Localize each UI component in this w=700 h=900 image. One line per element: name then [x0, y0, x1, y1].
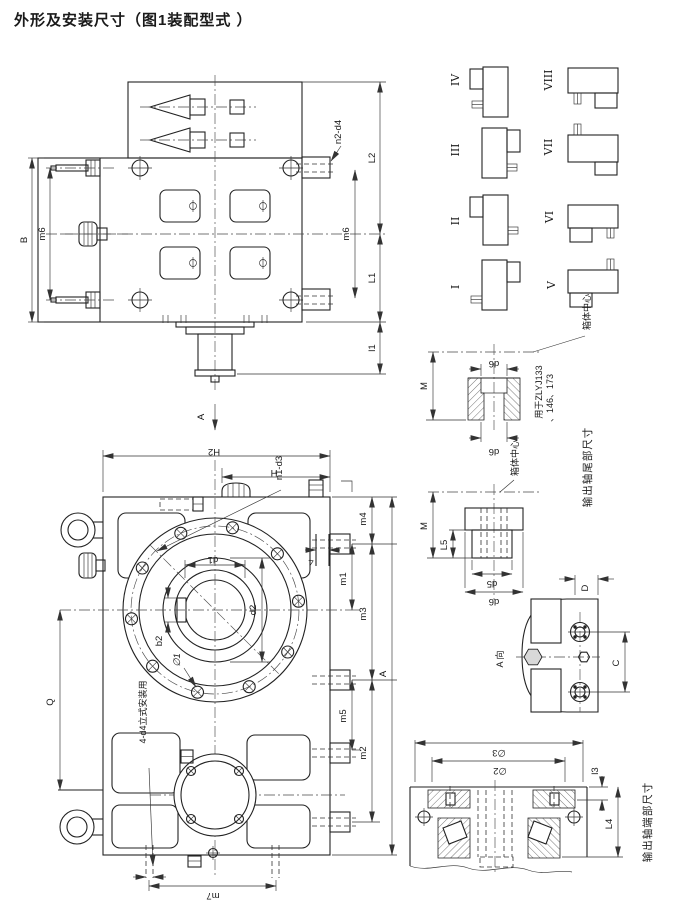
- view-a-dimensions: [559, 575, 630, 692]
- dim-label-d6-bottom: d6: [489, 446, 500, 457]
- usage-note-line1: 用于ZLYJ133: [534, 365, 544, 418]
- front-view: H2 H: [45, 446, 397, 900]
- breather-cap: [219, 483, 253, 497]
- dim-label-b2: b2: [154, 636, 165, 647]
- dim-label-m4: m4: [358, 512, 369, 525]
- input-shaft-cones: [140, 95, 256, 152]
- tapered-bearings: [438, 818, 560, 858]
- dim-label-n2-d4: n2-d4: [333, 120, 344, 144]
- usage-note-line2: 、146、173: [545, 374, 555, 422]
- box-center-label-2: 箱体中心: [509, 440, 520, 476]
- lower-opening: [174, 754, 256, 836]
- dim-label-phi1: ∅1: [172, 653, 183, 667]
- dim-label-step4: 4: [308, 556, 313, 567]
- dim-label-A: A: [378, 670, 389, 677]
- dim-label-l3: l3: [590, 767, 601, 774]
- dim-label-m5: m5: [338, 709, 349, 722]
- tail-caption: 输出轴尾部尺寸: [581, 427, 594, 508]
- technical-drawing: 外形及安装尺寸（图1装配型式 ）: [0, 0, 700, 900]
- assembly-type-viii: VIII: [542, 68, 618, 108]
- dim-label-H2: H2: [208, 446, 220, 457]
- drawing-page: 外形及安装尺寸（图1装配型式 ）: [0, 0, 700, 900]
- svg-text:I: I: [449, 285, 462, 289]
- dim-label-d2: d2: [248, 605, 259, 616]
- dim-label-M-upper: M: [419, 382, 430, 390]
- page-title: 外形及安装尺寸（图1装配型式 ）: [13, 11, 253, 29]
- view-a-arrow-label: A: [196, 413, 207, 420]
- front-side-tabs: [312, 534, 356, 832]
- dim-label-d6-lower: d6: [489, 596, 500, 607]
- svg-text:VII: VII: [542, 139, 555, 157]
- plan-view: B m6 n2-d4 L2 m6 L1 l1 A: [19, 75, 386, 430]
- output-shaft-end-section: ∅3 ∅2 l3 L4 输出轴端部尺寸: [410, 740, 654, 873]
- dim-label-m7: m7: [206, 890, 219, 900]
- dim-label-phi3: ∅3: [492, 747, 506, 758]
- svg-text:VIII: VIII: [542, 70, 555, 92]
- dim-label-L1: L1: [367, 273, 378, 284]
- dim-label-L4: L4: [604, 819, 615, 830]
- vertical-mount-note: 4-d4立式安装用: [137, 680, 148, 743]
- svg-text:III: III: [449, 143, 462, 156]
- assembly-type-i: I: [449, 260, 520, 310]
- dim-label-D: D: [580, 584, 591, 591]
- box-center-label-1: 箱体中心: [581, 294, 592, 330]
- dim-label-m2: m2: [358, 746, 369, 759]
- dim-label-d6-top: d6: [489, 358, 500, 369]
- svg-text:II: II: [449, 217, 462, 226]
- section-caption: 输出轴端部尺寸: [641, 782, 654, 863]
- assembly-type-ii: II: [449, 195, 518, 245]
- top-plug: [309, 480, 352, 497]
- svg-text:VI: VI: [543, 211, 556, 224]
- assembly-type-vii: VII: [542, 124, 618, 175]
- dim-label-l1: l1: [367, 344, 378, 351]
- dim-label-m6-left: m6: [37, 227, 48, 240]
- dim-label-B: B: [19, 237, 30, 243]
- svg-text:IV: IV: [449, 73, 462, 86]
- dim-label-Q: Q: [45, 698, 56, 705]
- dim-label-d5: d5: [487, 578, 498, 589]
- dim-label-M-lower: M: [419, 522, 430, 530]
- side-knob: [79, 553, 105, 578]
- assembly-type-iv: IV: [449, 67, 508, 117]
- dim-label-m6-right: m6: [341, 227, 352, 240]
- dim-label-n1-d3: n1-d3: [274, 456, 285, 480]
- dim-label-L5: L5: [439, 540, 450, 551]
- hex-nut: [524, 649, 542, 665]
- flange-studs: [46, 160, 128, 308]
- dim-label-L2: L2: [367, 153, 378, 164]
- assembly-type-iii: III: [449, 128, 520, 178]
- dim-label-m1: m1: [338, 572, 349, 585]
- assembly-type-diagrams: IV III II I VIII VII VI V: [449, 67, 618, 310]
- view-a-label: A 向: [494, 650, 505, 667]
- view-a: D C A 向: [494, 575, 630, 712]
- dim-label-m3: m3: [358, 607, 369, 620]
- oil-gauge: [160, 497, 203, 511]
- lifting-eye-top: [61, 513, 103, 547]
- output-shaft-tail-detail-solid: 箱体中心 M L5 d5 d6: [419, 440, 540, 607]
- assembly-type-vi: VI: [543, 205, 618, 242]
- dim-label-C: C: [611, 659, 622, 666]
- dim-label-d1: d1: [208, 554, 219, 565]
- lifting-eye-bottom: [60, 810, 103, 844]
- svg-text:V: V: [545, 280, 558, 290]
- output-shaft-tail-detail-hollow: 箱体中心 M d6 d6 用于ZLYJ133 、146、173: [419, 294, 592, 457]
- dim-label-phi2: ∅2: [493, 765, 507, 776]
